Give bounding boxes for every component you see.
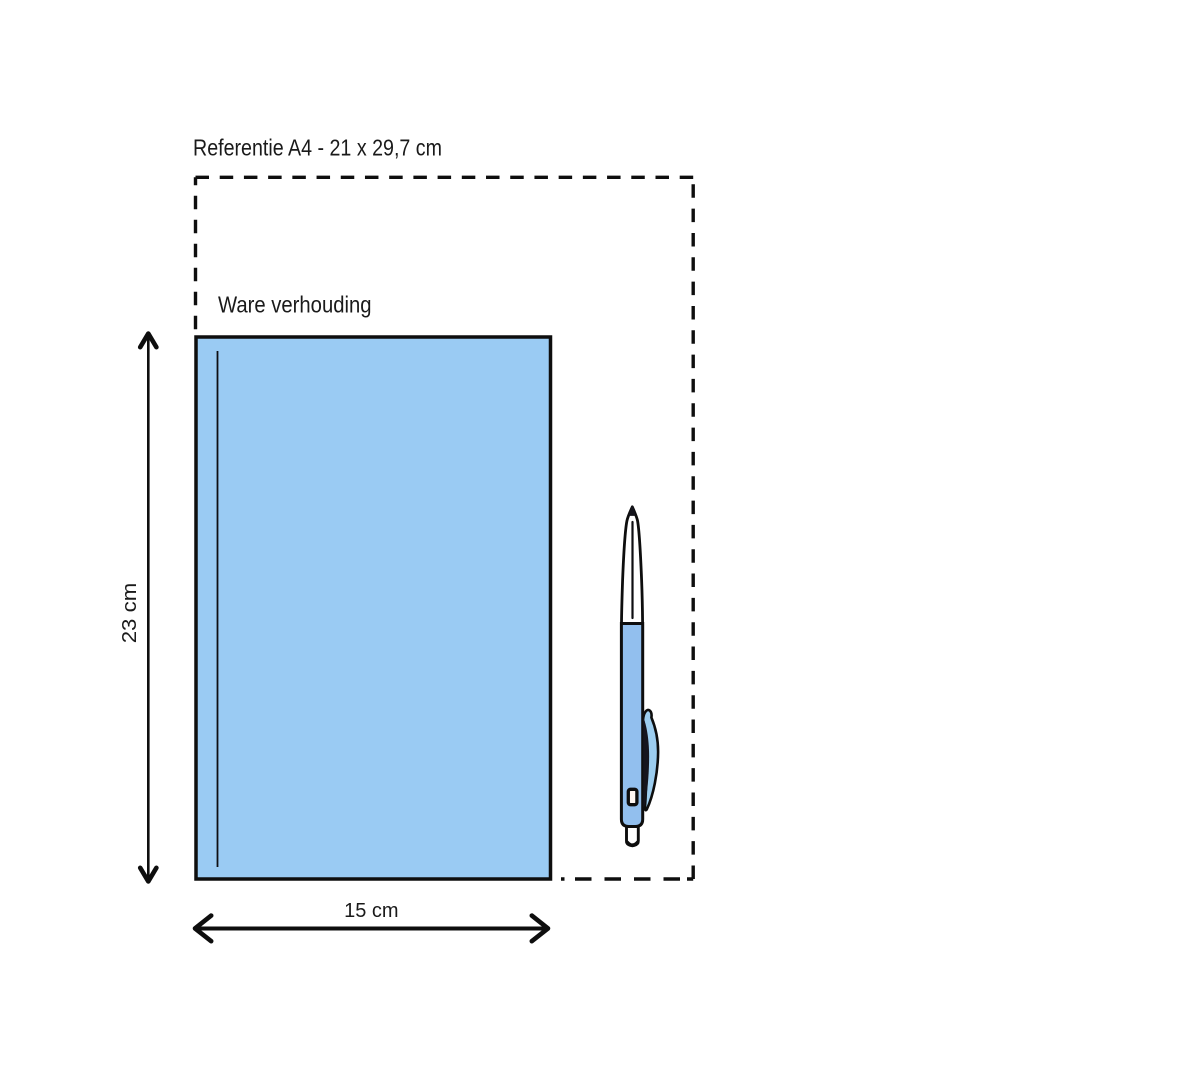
svg-text:Ware verhouding: Ware verhouding	[218, 292, 372, 318]
svg-text:15 cm: 15 cm	[344, 900, 398, 922]
svg-text:Referentie A4 - 21 x 29,7 cm: Referentie A4 - 21 x 29,7 cm	[193, 135, 442, 161]
svg-text:23 cm: 23 cm	[119, 583, 141, 644]
